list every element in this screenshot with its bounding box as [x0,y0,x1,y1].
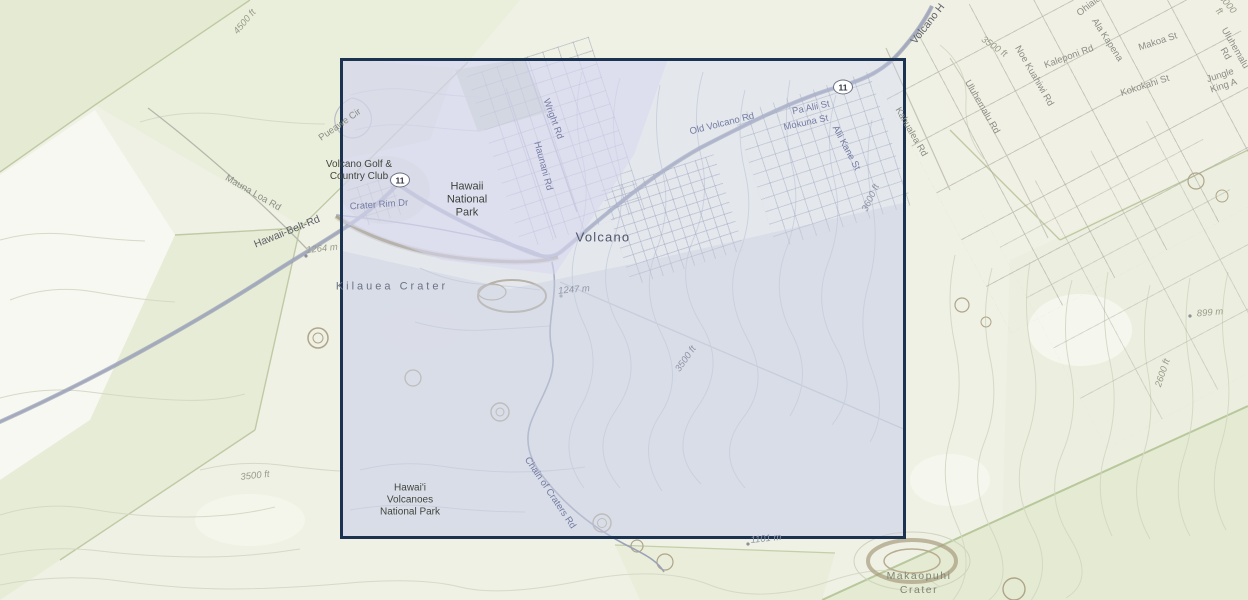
map-canvas[interactable]: 11 11 Volcano Golf & Country Club Hawaii… [0,0,1248,600]
map-selection-rectangle[interactable] [340,58,906,539]
